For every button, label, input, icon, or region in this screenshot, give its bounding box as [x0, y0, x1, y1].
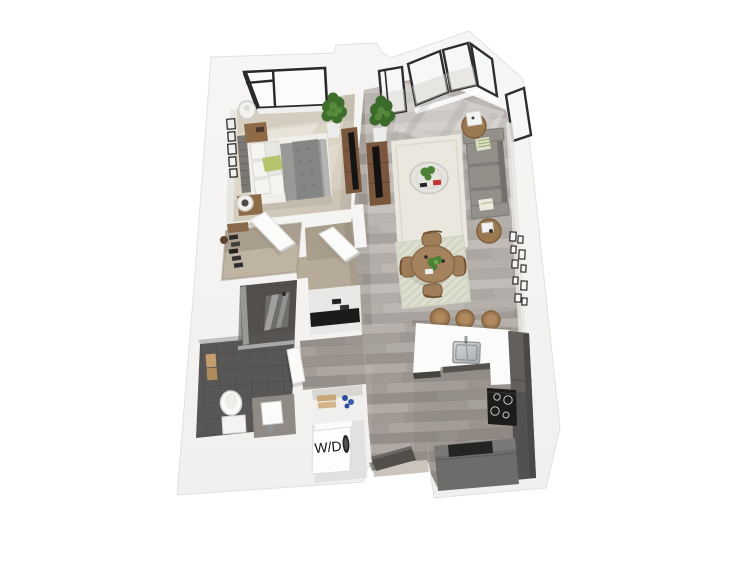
- svg-text:W/D: W/D: [314, 438, 343, 456]
